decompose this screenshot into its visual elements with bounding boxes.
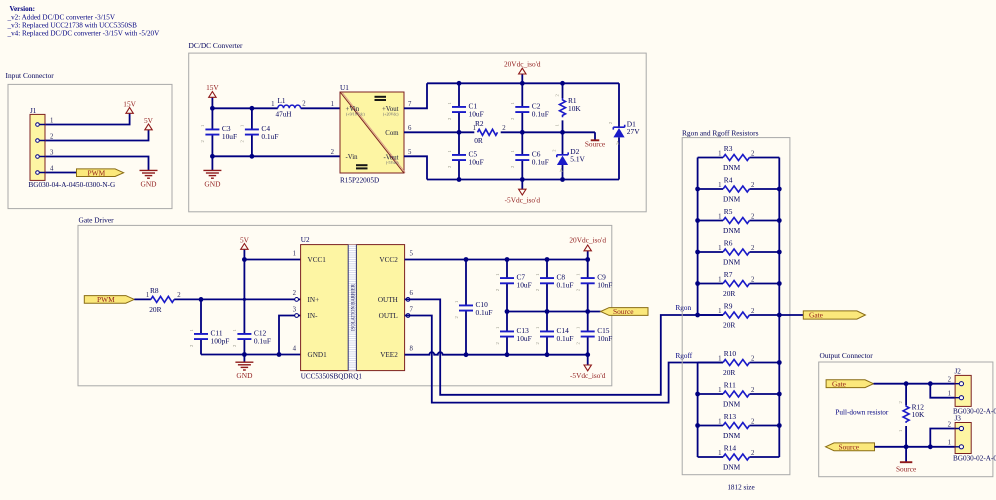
svg-text:2: 2 — [948, 377, 952, 384]
svg-text:2: 2 — [302, 101, 306, 108]
svg-text:R13: R13 — [724, 412, 737, 421]
svg-text:20Vdc_iso'd: 20Vdc_iso'd — [504, 60, 541, 69]
svg-text:1: 1 — [50, 117, 53, 124]
svg-text:J2: J2 — [955, 367, 962, 375]
svg-text:4: 4 — [293, 345, 297, 352]
svg-text:6: 6 — [410, 290, 414, 297]
svg-text:R14: R14 — [724, 444, 737, 453]
svg-text:7: 7 — [410, 306, 414, 313]
svg-text:0.1uF: 0.1uF — [261, 132, 278, 141]
svg-text:R3: R3 — [724, 144, 733, 153]
svg-text:6: 6 — [408, 125, 412, 132]
svg-text:1: 1 — [718, 182, 721, 189]
svg-text:27V: 27V — [627, 127, 640, 136]
svg-text:5: 5 — [410, 250, 414, 257]
svg-text:Version:: Version: — [10, 5, 36, 13]
svg-text:A: A — [560, 169, 564, 174]
svg-text:-Vin: -Vin — [346, 154, 359, 161]
svg-text:PWM: PWM — [88, 168, 106, 177]
svg-text:J3: J3 — [955, 414, 962, 422]
svg-text:10nF: 10nF — [597, 334, 612, 343]
svg-text:10uF: 10uF — [222, 132, 237, 141]
svg-text:-5Vdc_iso'd: -5Vdc_iso'd — [570, 371, 606, 380]
svg-text:0.1uF: 0.1uF — [532, 157, 549, 166]
svg-text:2: 2 — [751, 245, 755, 252]
svg-text:2: 2 — [751, 276, 755, 283]
svg-text:0.1uF: 0.1uF — [532, 109, 549, 118]
svg-text:Gate: Gate — [809, 311, 824, 320]
svg-text:Gate: Gate — [832, 379, 847, 388]
svg-text:10uF: 10uF — [469, 157, 484, 166]
svg-text:R6: R6 — [724, 239, 733, 248]
svg-text:PWM: PWM — [97, 295, 115, 304]
svg-text:BG030-04-A-0450-0300-N-G: BG030-04-A-0450-0300-N-G — [29, 181, 116, 189]
svg-text:2: 2 — [751, 182, 755, 189]
svg-text:5V: 5V — [240, 235, 250, 244]
svg-text:GND: GND — [204, 180, 221, 189]
svg-text:R4: R4 — [724, 176, 733, 185]
svg-text:3: 3 — [293, 306, 297, 313]
svg-text:2: 2 — [751, 308, 755, 315]
svg-text:1: 1 — [718, 450, 721, 457]
svg-text:GND1: GND1 — [308, 351, 328, 359]
svg-text:20R: 20R — [149, 305, 161, 314]
svg-text:DNM: DNM — [723, 163, 741, 172]
svg-text:DC/DC Converter: DC/DC Converter — [189, 41, 244, 50]
svg-text:R5: R5 — [724, 207, 733, 216]
svg-text:1: 1 — [718, 150, 721, 157]
svg-text:Input Connector: Input Connector — [6, 71, 55, 80]
svg-text:1: 1 — [718, 245, 721, 252]
svg-text:Com: Com — [385, 130, 399, 137]
svg-text:10uF: 10uF — [517, 334, 532, 343]
svg-text:(-5Vdc): (-5Vdc) — [386, 160, 399, 165]
svg-text:1: 1 — [473, 125, 476, 132]
svg-text:U1: U1 — [340, 84, 349, 92]
svg-text:GND: GND — [236, 371, 253, 380]
svg-text:20R: 20R — [723, 289, 735, 298]
svg-text:R11: R11 — [724, 381, 736, 390]
svg-text:J1: J1 — [30, 107, 37, 115]
svg-text:2: 2 — [751, 213, 755, 220]
svg-text:7: 7 — [408, 101, 412, 108]
svg-text:2: 2 — [177, 292, 181, 299]
svg-text:8: 8 — [410, 345, 414, 352]
svg-text:DNM: DNM — [723, 195, 741, 204]
svg-text:1: 1 — [718, 387, 721, 394]
svg-text:1: 1 — [718, 276, 721, 283]
svg-text:1: 1 — [718, 355, 721, 362]
svg-text:1812 size: 1812 size — [727, 484, 754, 492]
svg-text:0.1uF: 0.1uF — [557, 334, 574, 343]
svg-text:UCC5350SBQDRQ1: UCC5350SBQDRQ1 — [301, 373, 363, 381]
svg-text:2: 2 — [293, 290, 297, 297]
svg-text:1: 1 — [331, 101, 334, 108]
svg-text:10K: 10K — [912, 410, 925, 419]
svg-text:5: 5 — [408, 149, 412, 156]
svg-text:Source: Source — [613, 307, 634, 316]
svg-text:VCC2: VCC2 — [379, 256, 398, 264]
svg-text:R15P22005D: R15P22005D — [340, 177, 379, 185]
svg-text:DNM: DNM — [723, 258, 741, 267]
svg-text:10nF: 10nF — [597, 281, 612, 290]
svg-text:20Vdc_iso'd: 20Vdc_iso'd — [569, 235, 606, 244]
svg-text:10uF: 10uF — [469, 109, 484, 118]
svg-text:R8: R8 — [150, 286, 159, 295]
svg-text:2: 2 — [751, 450, 755, 457]
svg-text:_v2: Added DC/DC converter -3/: _v2: Added DC/DC converter -3/15V — [7, 13, 116, 21]
svg-text:1: 1 — [718, 308, 721, 315]
svg-text:Source: Source — [839, 443, 860, 452]
svg-text:ISOLATION BARRIER: ISOLATION BARRIER — [351, 283, 356, 331]
svg-text:U2: U2 — [301, 236, 310, 244]
svg-text:15V: 15V — [123, 99, 136, 108]
svg-text:BG030-02-A-0450-0300-N-G: BG030-02-A-0450-0300-N-G — [953, 455, 996, 463]
svg-text:IN+: IN+ — [308, 296, 320, 304]
svg-text:5.1V: 5.1V — [570, 154, 585, 163]
svg-text:0R: 0R — [474, 136, 483, 145]
svg-text:2: 2 — [948, 421, 952, 428]
svg-text:DNM: DNM — [723, 431, 741, 440]
svg-text:5V: 5V — [144, 116, 154, 125]
svg-text:OUTH: OUTH — [378, 296, 398, 304]
svg-text:DNM: DNM — [723, 463, 741, 472]
svg-text:DNM: DNM — [723, 400, 741, 409]
svg-text:4: 4 — [50, 165, 54, 172]
svg-text:L1: L1 — [278, 97, 286, 105]
svg-text:Output Connector: Output Connector — [820, 351, 874, 360]
svg-text:2: 2 — [751, 150, 755, 157]
svg-text:1: 1 — [271, 101, 274, 108]
svg-text:0.1uF: 0.1uF — [557, 281, 574, 290]
svg-text:OUTL: OUTL — [379, 312, 398, 320]
svg-text:1: 1 — [948, 440, 951, 447]
svg-text:15V: 15V — [206, 83, 219, 92]
svg-text:A: A — [616, 141, 620, 146]
svg-text:Gate Driver: Gate Driver — [79, 216, 115, 225]
svg-text:2: 2 — [751, 355, 755, 362]
svg-text:20R: 20R — [723, 321, 735, 330]
svg-text:Rgon and Rgoff Resistors: Rgon and Rgoff Resistors — [682, 128, 759, 137]
svg-text:10K: 10K — [568, 104, 581, 113]
svg-text:2: 2 — [751, 387, 755, 394]
svg-text:Source: Source — [585, 139, 605, 148]
svg-text:2: 2 — [751, 418, 755, 425]
svg-text:0.1uF: 0.1uF — [476, 308, 493, 317]
svg-text:_v3: Replaced UCC21738 with UC: _v3: Replaced UCC21738 with UCC5350SB — [7, 21, 138, 29]
svg-text:1: 1 — [718, 213, 721, 220]
svg-text:Rgon: Rgon — [676, 304, 692, 312]
svg-text:-5Vdc_iso'd: -5Vdc_iso'd — [505, 196, 541, 205]
svg-text:Source: Source — [896, 465, 916, 474]
svg-text:20R: 20R — [723, 368, 735, 377]
svg-text:1: 1 — [293, 250, 296, 257]
svg-text:_v4: Replaced DC/DC converter: _v4: Replaced DC/DC converter -3/15V wit… — [7, 30, 161, 38]
svg-text:R10: R10 — [724, 349, 737, 358]
svg-text:1: 1 — [718, 418, 721, 425]
svg-text:VEE2: VEE2 — [380, 351, 398, 359]
svg-text:IN-: IN- — [308, 312, 319, 320]
svg-text:10uF: 10uF — [517, 281, 532, 290]
svg-text:2: 2 — [50, 133, 54, 140]
svg-text:2: 2 — [502, 125, 506, 132]
svg-text:1: 1 — [146, 292, 149, 299]
svg-text:R2: R2 — [475, 119, 484, 128]
svg-text:(+9/18Vdc): (+9/18Vdc) — [346, 112, 365, 117]
svg-text:0.1uF: 0.1uF — [254, 336, 271, 345]
svg-text:DNM: DNM — [723, 226, 741, 235]
svg-text:2: 2 — [331, 149, 335, 156]
svg-text:Pull-down resistor: Pull-down resistor — [835, 409, 889, 417]
svg-text:Rgoff: Rgoff — [676, 352, 693, 360]
svg-text:(+20Vdc): (+20Vdc) — [383, 112, 399, 117]
svg-text:VCC1: VCC1 — [308, 256, 327, 264]
svg-text:R7: R7 — [724, 270, 733, 279]
svg-text:R9: R9 — [724, 302, 733, 311]
svg-text:1: 1 — [948, 391, 951, 398]
svg-text:47uH: 47uH — [276, 111, 292, 119]
svg-text:100pF: 100pF — [211, 336, 230, 345]
svg-text:GND: GND — [140, 179, 157, 188]
svg-text:3: 3 — [50, 149, 54, 156]
